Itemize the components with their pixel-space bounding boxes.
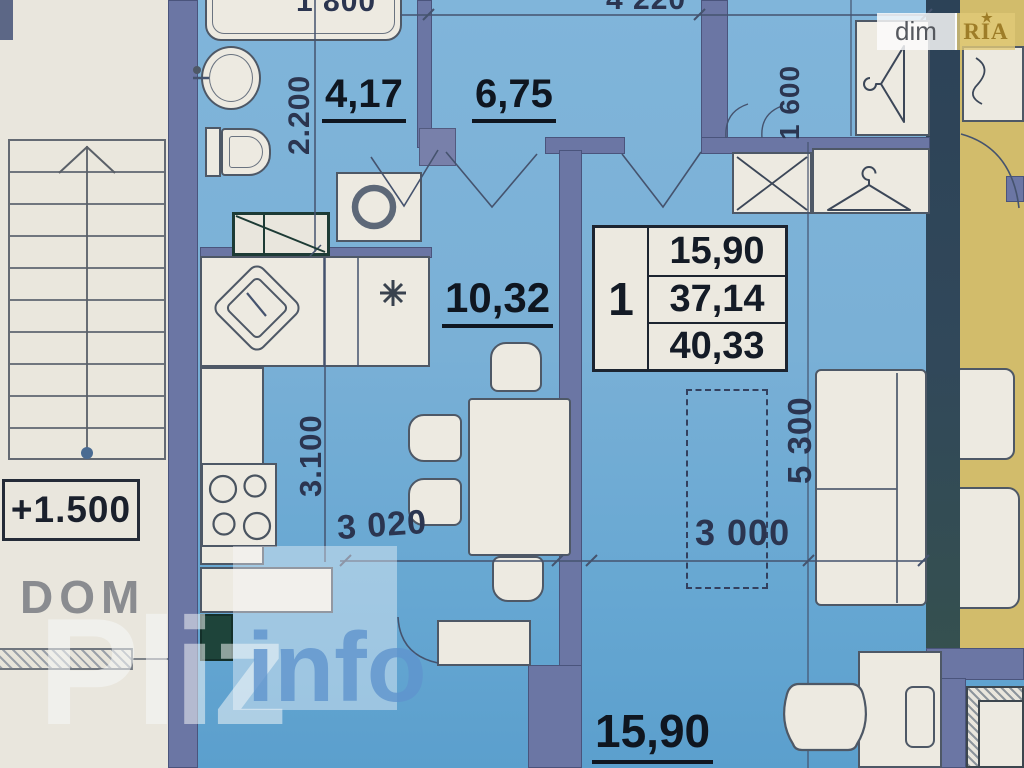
- living-area-value: 15,90: [592, 704, 713, 764]
- total-area-cell: 40,33: [649, 322, 785, 369]
- bathroom-area-value: 4,17: [322, 72, 406, 123]
- hall-area-label: 6,75: [472, 72, 556, 123]
- kitchen-area-label: 10,32: [442, 274, 553, 328]
- apartment-info-table: 1 15,90 37,14 40,33: [592, 225, 788, 372]
- rooms-count-cell: 1: [595, 228, 649, 369]
- logo-dim-text: dim: [877, 13, 957, 50]
- hall-area-value: 6,75: [472, 72, 556, 123]
- bathroom-area-label: 4,17: [322, 72, 406, 123]
- dim-kitchen-width: 3 020: [336, 503, 429, 548]
- dim-kitchen-depth: 3.100: [293, 414, 329, 497]
- kitchen-area-value: 10,32: [442, 274, 553, 328]
- usable-area-cell: 37,14: [649, 275, 785, 322]
- dim-ria-logo: dim RIA ★: [877, 13, 1015, 50]
- dim-bathroom-depth: 2.200: [283, 75, 317, 155]
- dim-bathtub-width: 1 800: [296, 0, 376, 19]
- dim-top-width: 4 220: [606, 0, 686, 17]
- living-area-cell: 15,90: [649, 228, 785, 275]
- dim-closet-width: 1 600: [774, 65, 806, 140]
- dim-living-depth: 5 300: [781, 396, 819, 484]
- logo-ria-text: RIA ★: [957, 13, 1015, 50]
- ria-star-icon: ★: [981, 10, 994, 26]
- floor-plan: +1.500: [0, 0, 1024, 768]
- living-area-label: 15,90: [592, 704, 713, 764]
- dim-living-width: 3 000: [695, 512, 790, 554]
